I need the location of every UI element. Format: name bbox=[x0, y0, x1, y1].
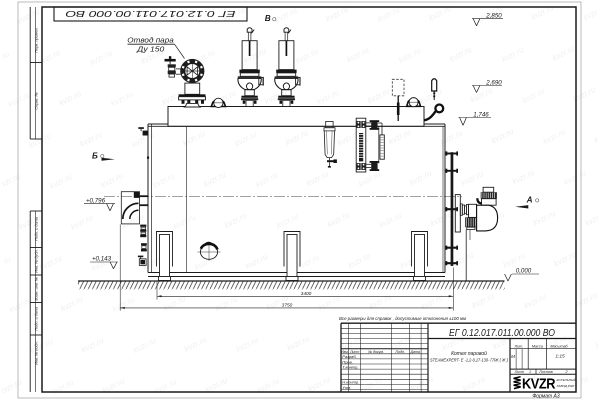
svg-text:3750: 3750 bbox=[282, 302, 293, 308]
svg-text:Инв. № дубл.: Инв. № дубл. bbox=[35, 249, 39, 272]
svg-text:Справ. №: Справ. № bbox=[35, 92, 39, 109]
svg-text:Лит.: Лит. bbox=[514, 345, 524, 349]
svg-text:Подп. и дата: Подп. и дата bbox=[35, 217, 39, 241]
svg-text:STEAMEXPERT- Е -1,2-0,17-130-: STEAMEXPERT- Е -1,2-0,17-130- ГЛЖ ( Ж ) bbox=[430, 357, 509, 362]
svg-text:0,000: 0,000 bbox=[516, 268, 532, 275]
svg-text:А: А bbox=[526, 196, 533, 205]
svg-text:Масштаб: Масштаб bbox=[550, 345, 568, 349]
svg-text:2: 2 bbox=[564, 370, 567, 374]
svg-text:Листов: Листов bbox=[538, 370, 553, 374]
svg-text:КОТЕЛЬНЫЙ: КОТЕЛЬНЫЙ bbox=[557, 378, 577, 382]
svg-text:+0,143: +0,143 bbox=[92, 256, 112, 263]
svg-text:Подп. и дата: Подп. и дата bbox=[35, 307, 39, 331]
svg-text:Т.контр.: Т.контр. bbox=[342, 364, 358, 369]
svg-text:Утв.: Утв. bbox=[342, 385, 351, 390]
svg-text:Ду 150: Ду 150 bbox=[136, 45, 165, 54]
svg-text:Отвод пара: Отвод пара bbox=[127, 36, 174, 45]
svg-text:Лист: Лист bbox=[514, 370, 525, 374]
svg-text:Б: Б bbox=[92, 151, 98, 160]
svg-text:1:15: 1:15 bbox=[555, 354, 565, 360]
svg-text:KVZR: KVZR bbox=[522, 377, 556, 393]
svg-text:Масса: Масса bbox=[532, 345, 543, 349]
svg-text:В: В bbox=[265, 14, 271, 23]
svg-text:ЕГ 0.12.017.011.00.000 ВО: ЕГ 0.12.017.011.00.000 ВО bbox=[66, 9, 236, 18]
svg-text:№ докум.: № докум. bbox=[368, 350, 384, 354]
svg-text:Формат А3: Формат А3 bbox=[532, 394, 560, 400]
svg-text:Дата: Дата bbox=[409, 350, 419, 354]
svg-text:Все размеры для справок , допу: Все размеры для справок , допустимые отк… bbox=[339, 316, 467, 321]
svg-text:+0,796: +0,796 bbox=[86, 197, 106, 204]
svg-text:Взам. инв. №: Взам. инв. № bbox=[35, 277, 39, 300]
svg-text:1: 1 bbox=[529, 370, 531, 374]
svg-text:Перв. примен.: Перв. примен. bbox=[35, 27, 39, 52]
svg-text:Подп.: Подп. bbox=[396, 350, 406, 354]
svg-text:3400: 3400 bbox=[301, 291, 312, 297]
svg-text:Котел паровой: Котел паровой bbox=[451, 350, 487, 357]
svg-text:ЕГ 0.12.017.011.00.000 ВО: ЕГ 0.12.017.011.00.000 ВО bbox=[449, 328, 555, 339]
svg-text:Инв. № подл.: Инв. № подл. bbox=[35, 341, 39, 365]
svg-text:М: М bbox=[511, 354, 515, 359]
svg-text:ЗАВОД РЭП: ЗАВОД РЭП bbox=[557, 384, 576, 388]
